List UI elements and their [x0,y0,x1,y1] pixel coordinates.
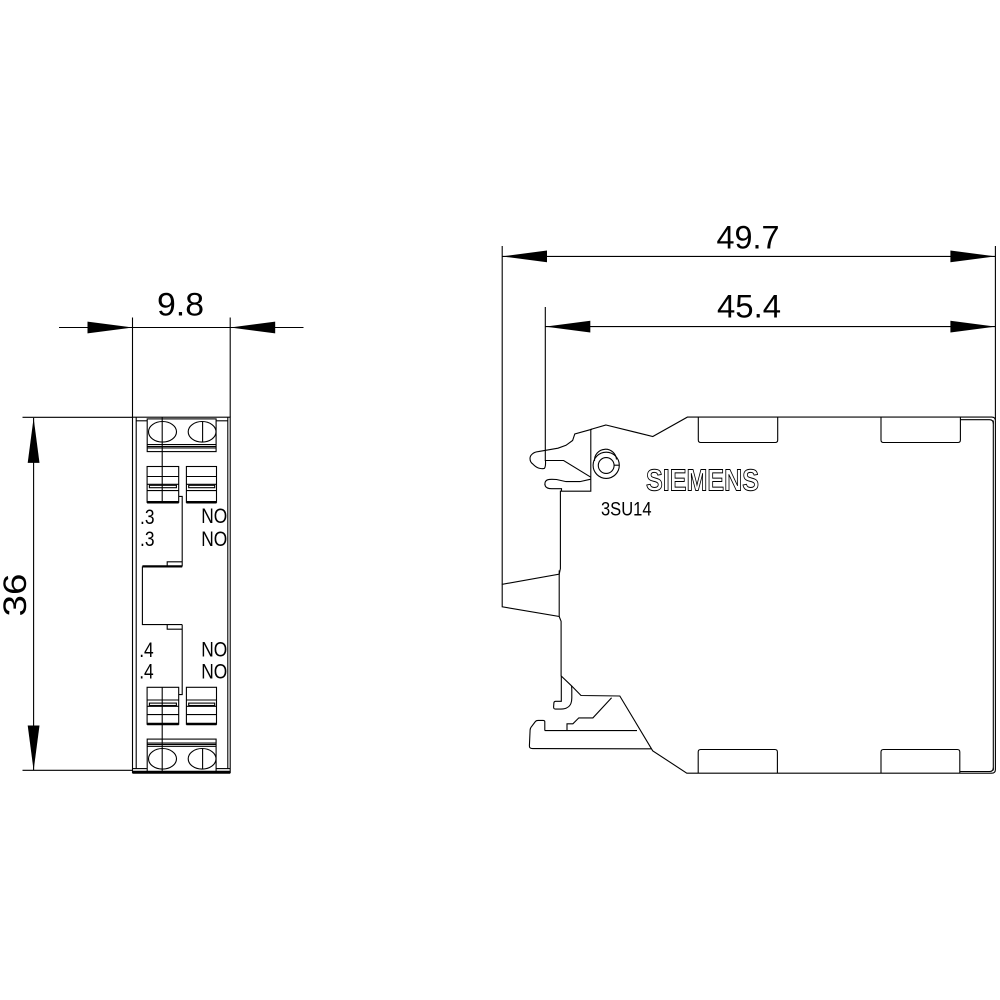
svg-text:NO: NO [201,660,227,683]
svg-text:49.7: 49.7 [717,220,780,256]
svg-text:NO: NO [201,639,227,662]
svg-text:NO: NO [201,528,227,551]
svg-text:45.4: 45.4 [717,288,781,324]
svg-text:3SU14: 3SU14 [601,498,652,520]
svg-text:SIEMENS: SIEMENS [646,463,759,498]
svg-text:9.8: 9.8 [157,287,204,323]
svg-text:36: 36 [0,574,33,617]
svg-text:NO: NO [201,505,227,528]
svg-text:.4: .4 [139,661,154,684]
svg-text:.3: .3 [140,506,155,529]
svg-text:.4: .4 [139,639,154,662]
svg-text:.3: .3 [140,528,155,551]
